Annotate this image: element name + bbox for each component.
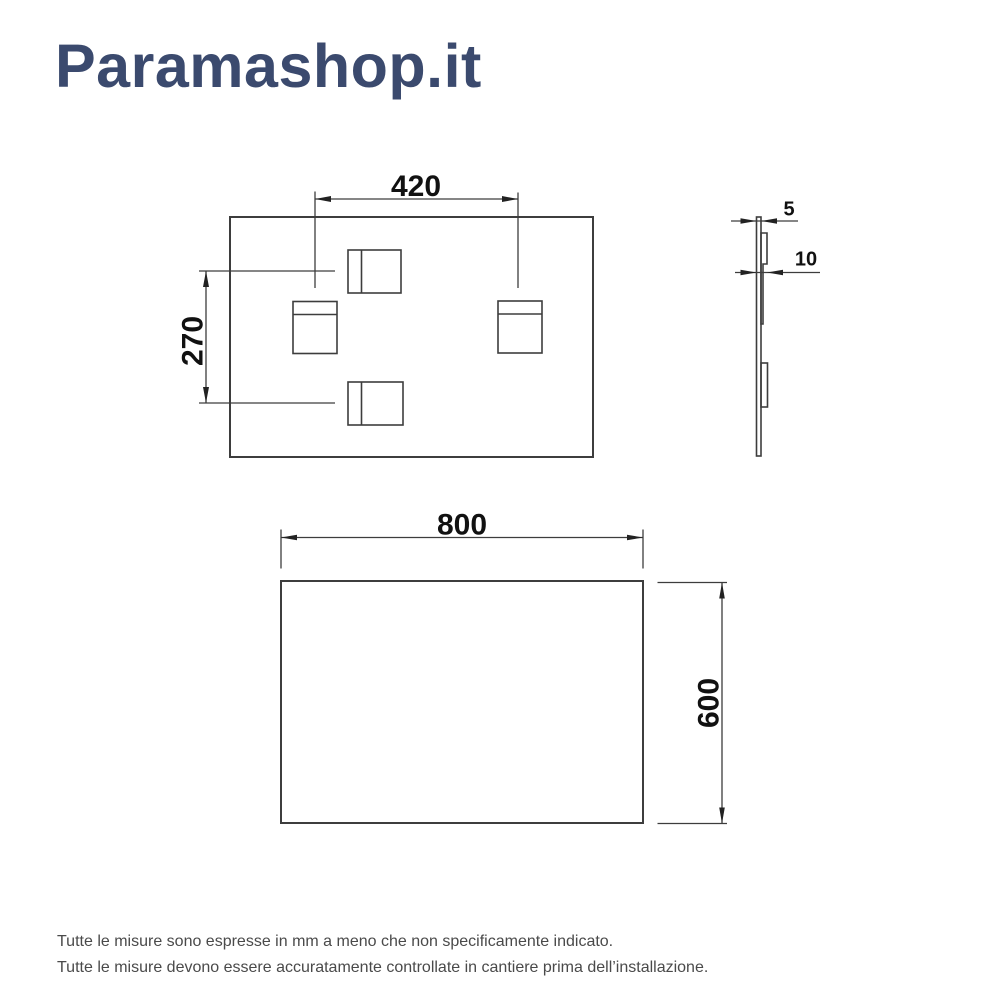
page: Paramashop.it: [0, 0, 1000, 1000]
arrowhead-right-icon: [741, 270, 757, 276]
bracket-left-outline: [293, 302, 337, 354]
dimension-label-5: 5: [783, 199, 794, 221]
bracket-right: [498, 301, 542, 353]
dimension-600: 600: [658, 583, 728, 824]
bracket-left: [293, 302, 337, 354]
arrowhead-left-icon: [315, 196, 331, 202]
arrowhead-down-icon: [203, 387, 209, 403]
dimension-label-600: 600: [693, 678, 726, 728]
bracket-top-outline: [348, 250, 401, 293]
arrowhead-up-icon: [203, 271, 209, 287]
dimension-800: 800: [281, 509, 643, 569]
side-view: 5 10: [731, 199, 820, 457]
arrowhead-down-icon: [719, 808, 725, 824]
dimension-5: 5: [731, 199, 798, 224]
arrowhead-right-icon: [741, 218, 757, 224]
bracket-top: [348, 250, 401, 293]
footer-note-line1: Tutte le misure sono espresse in mm a me…: [57, 929, 708, 955]
front-view: 800 600: [281, 509, 727, 824]
footer-notes: Tutte le misure sono espresse in mm a me…: [57, 929, 708, 981]
dimension-label-800: 800: [437, 509, 487, 542]
arrowhead-left-icon: [281, 535, 297, 541]
footer-note-line2: Tutte le misure devono essere accuratame…: [57, 955, 708, 981]
dimension-label-10: 10: [795, 249, 817, 271]
bracket-bottom-outline: [348, 382, 403, 425]
side-bracket-lower: [761, 363, 768, 407]
dimension-label-270: 270: [177, 316, 210, 366]
arrowhead-up-icon: [719, 583, 725, 599]
arrowhead-left-icon: [767, 270, 783, 276]
bracket-bottom: [348, 382, 403, 425]
dimension-10: 10: [735, 249, 820, 276]
dimension-270: 270: [177, 271, 336, 403]
bracket-right-outline: [498, 301, 542, 353]
arrowhead-left-icon: [761, 218, 777, 224]
dimension-label-420: 420: [391, 170, 441, 203]
arrowhead-right-icon: [627, 535, 643, 541]
rear-panel-outline: [230, 217, 593, 457]
arrowhead-right-icon: [502, 196, 518, 202]
technical-drawing-canvas: 420 270 5: [0, 0, 1000, 1000]
front-panel-outline: [281, 581, 643, 823]
dimension-420: 420: [315, 170, 518, 288]
rear-view: 420 270: [177, 170, 594, 457]
side-bracket-upper: [761, 233, 767, 324]
